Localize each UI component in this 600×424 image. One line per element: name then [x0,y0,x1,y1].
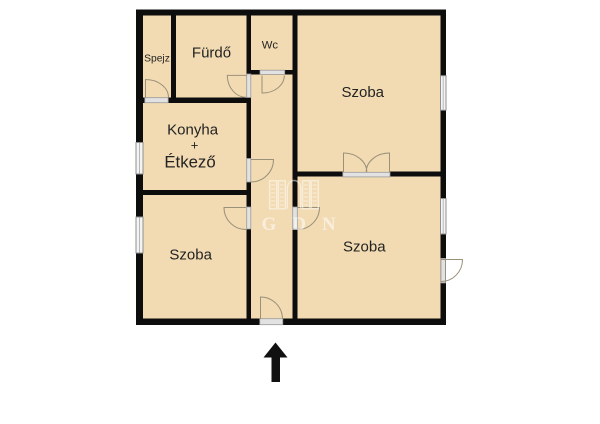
svg-text:Konyha: Konyha [167,122,219,139]
svg-text:+: + [191,138,199,153]
svg-text:Szoba: Szoba [343,239,386,256]
svg-text:Spejz: Spejz [144,54,170,65]
svg-text:Fürdő: Fürdő [192,45,231,62]
svg-text:Étkező: Étkező [164,153,215,172]
svg-text:GDN: GDN [262,214,352,235]
svg-text:Szoba: Szoba [169,247,212,264]
svg-text:Wc: Wc [262,39,279,51]
svg-text:Szoba: Szoba [341,84,384,101]
